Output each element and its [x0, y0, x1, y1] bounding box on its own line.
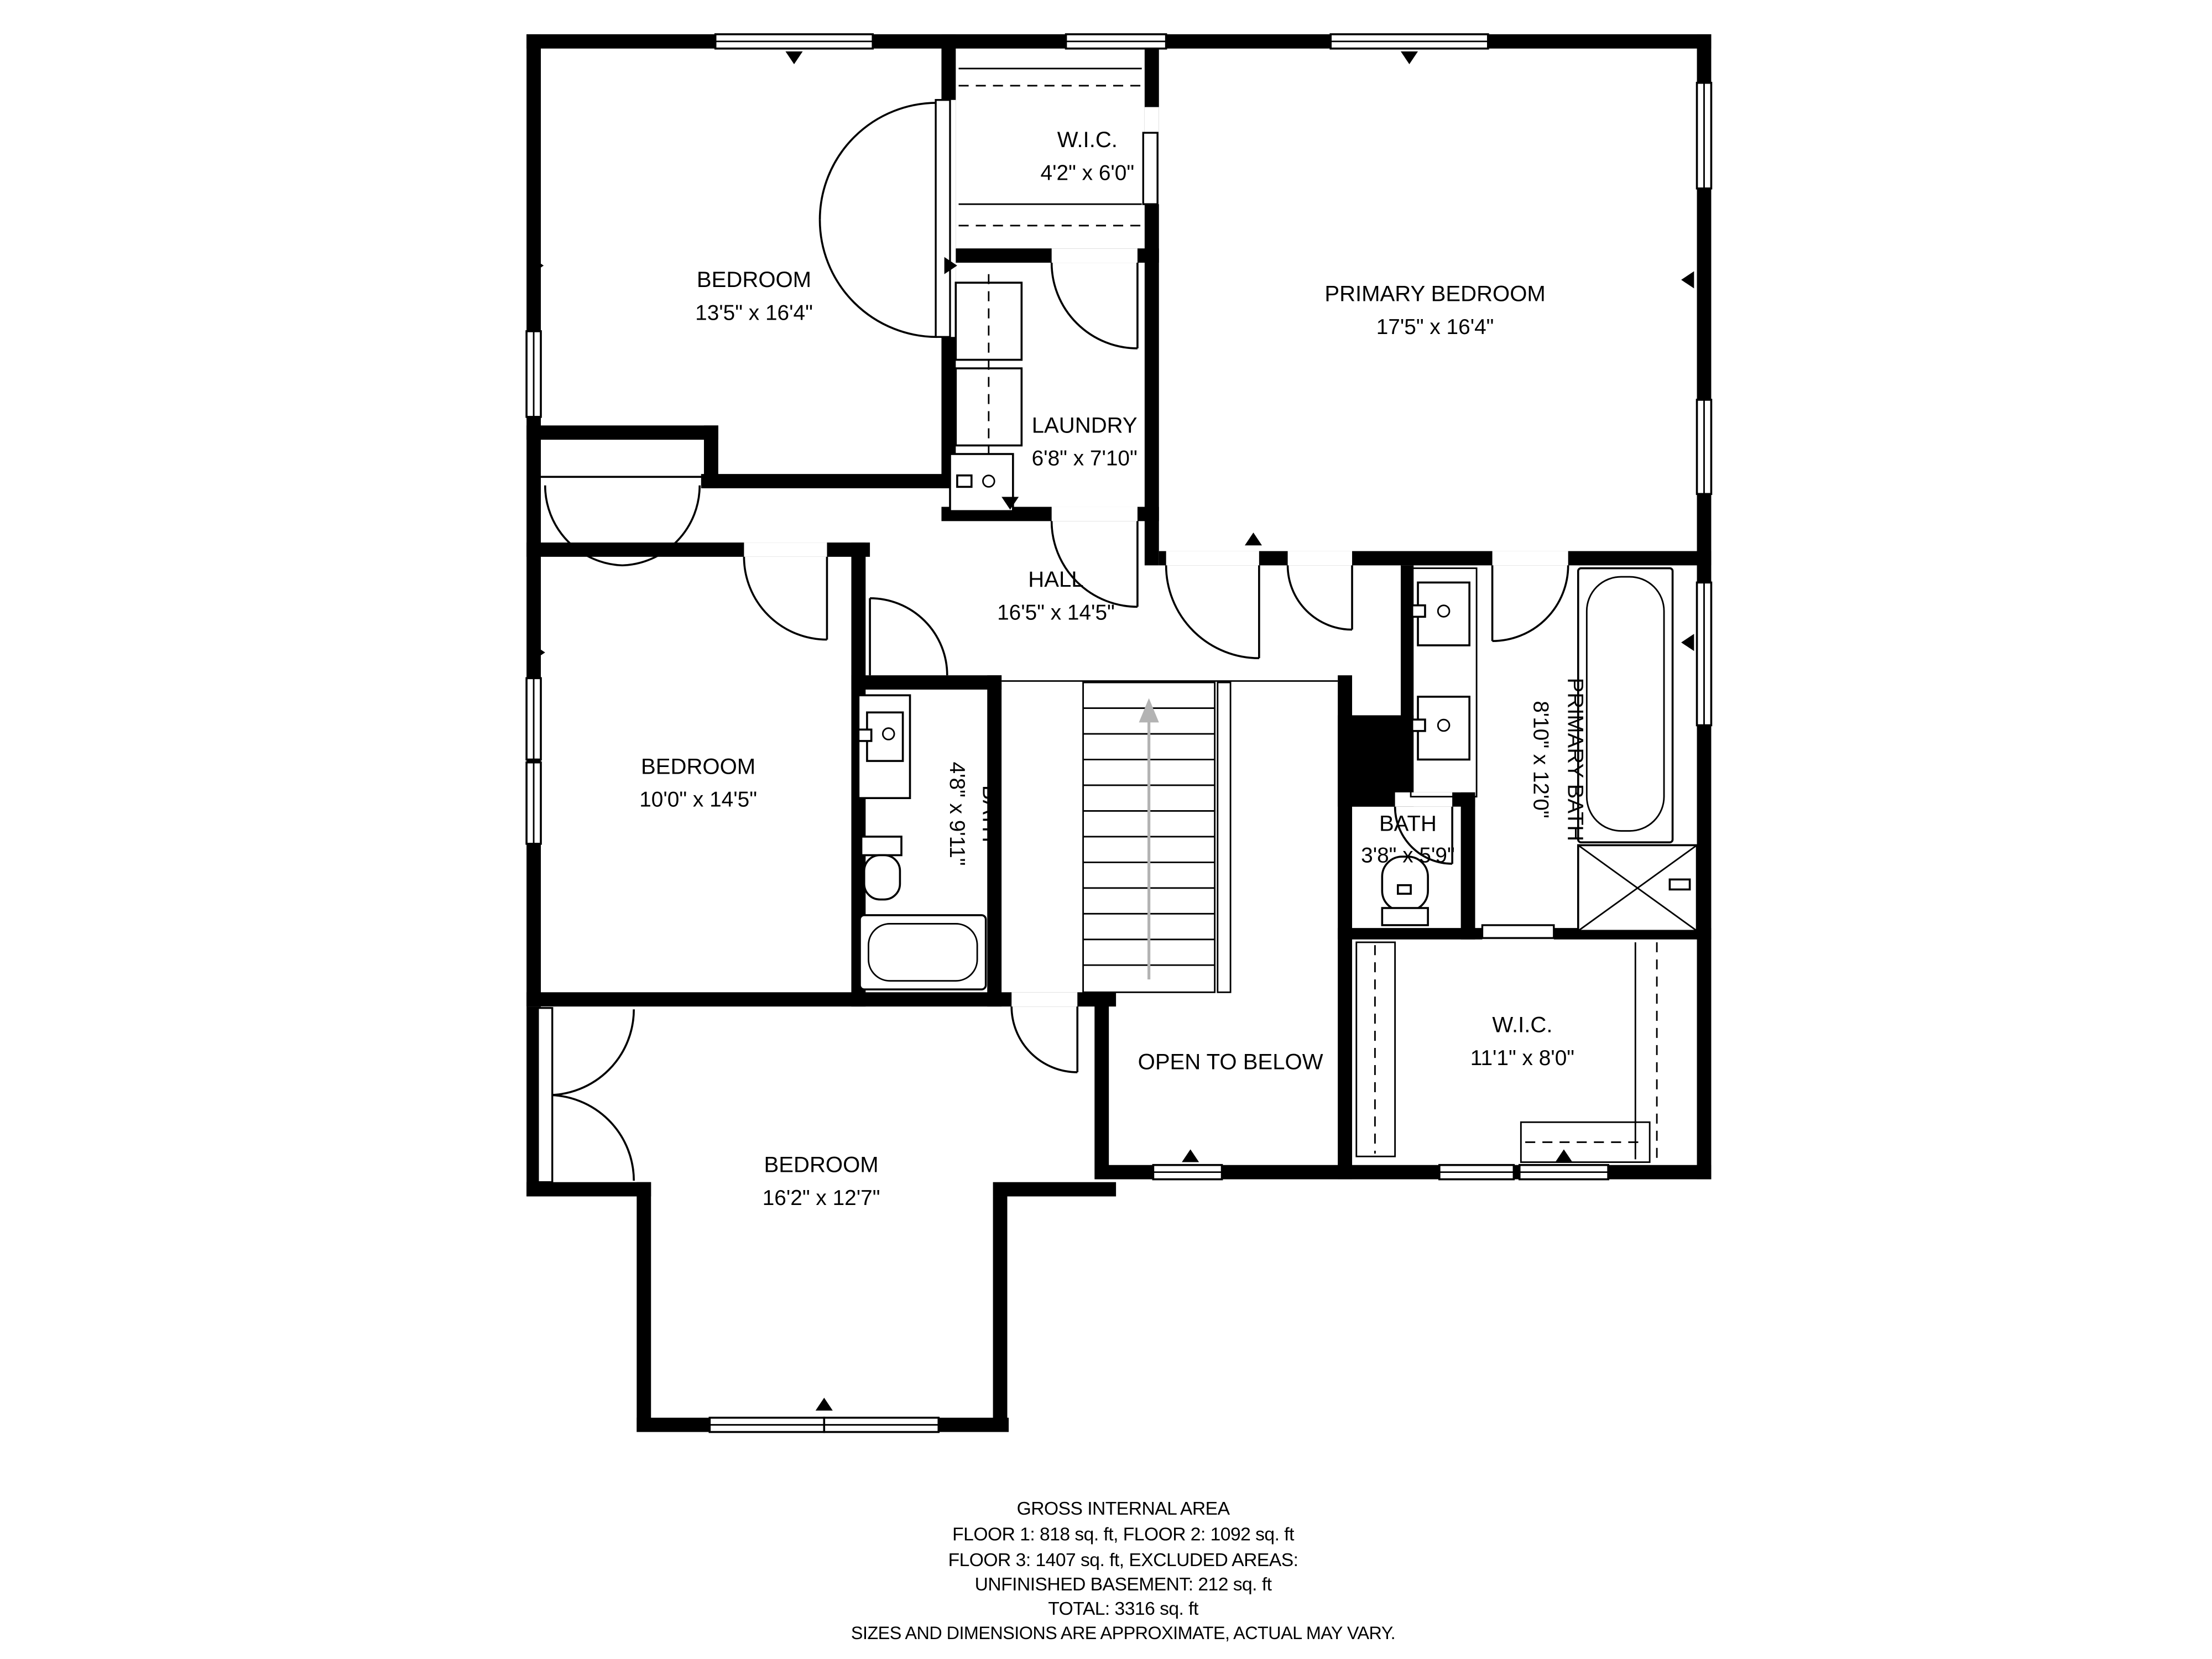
pocket-door-leaf	[1143, 133, 1157, 204]
room-label-laundry: LAUNDRY	[1032, 413, 1138, 437]
window	[1331, 34, 1488, 49]
wall-segment	[1401, 565, 1413, 722]
window	[709, 1418, 824, 1432]
door	[744, 557, 827, 640]
room-label-wic-bottom: W.I.C.	[1492, 1013, 1552, 1037]
wall-segment	[637, 1182, 651, 1432]
room-dims-wic-top: 4'2" x 6'0"	[1041, 161, 1135, 185]
opening	[1166, 551, 1259, 566]
window	[1066, 34, 1166, 49]
door	[1166, 565, 1259, 658]
shower	[1578, 845, 1697, 931]
footer-title: GROSS INTERNAL AREA	[1017, 1499, 1230, 1519]
window	[1520, 1165, 1608, 1180]
room-label-open-to-below: OPEN TO BELOW	[1138, 1050, 1323, 1074]
wall-segment	[1461, 792, 1475, 940]
opening	[1395, 792, 1452, 807]
window	[1439, 1165, 1514, 1180]
door	[1052, 521, 1138, 607]
room-dims-hall: 16'5" x 14'5"	[997, 601, 1115, 625]
stair-railing	[1218, 682, 1230, 992]
room-dims-bath-left: 4'8" x 9'11"	[945, 762, 969, 866]
room-dims-bath-small: 3'8" x 5'9"	[1361, 843, 1455, 867]
floor-plan-svg: BEDROOM 13'5" x 16'4" W.I.C. 4'2" x 6'0"…	[0, 0, 2212, 1659]
floor-plan-page: BEDROOM 13'5" x 16'4" W.I.C. 4'2" x 6'0"…	[0, 0, 2212, 1659]
wall-segment	[993, 1197, 1008, 1432]
footer-line2: FLOOR 3: 1407 sq. ft, EXCLUDED AREAS:	[948, 1550, 1298, 1571]
double-door	[538, 1008, 634, 1182]
primary-bath-fixtures	[1411, 568, 1697, 931]
room-label-bedroom-left: BEDROOM	[641, 754, 755, 779]
window	[1697, 582, 1712, 725]
opening	[744, 542, 827, 557]
laundry-sink	[950, 454, 1013, 511]
toilet	[862, 837, 901, 900]
room-labels: BEDROOM 13'5" x 16'4" W.I.C. 4'2" x 6'0"…	[639, 128, 1588, 1210]
wall-segment	[704, 425, 718, 488]
room-dims-primary-bath: 8'10" x 12'0"	[1529, 701, 1553, 818]
door	[1493, 565, 1568, 641]
room-dims-bedroom-bottom: 16'2" x 12'7"	[763, 1186, 880, 1210]
room-label-hall: HALL	[1028, 567, 1083, 592]
door	[1288, 565, 1352, 629]
room-dims-primary-bedroom: 17'5" x 16'4"	[1376, 315, 1494, 339]
opening	[1052, 507, 1138, 521]
room-label-bath-small: BATH	[1379, 812, 1437, 836]
bathtub	[1578, 568, 1673, 843]
wall-segment	[526, 425, 718, 440]
room-label-bedroom-bottom: BEDROOM	[764, 1153, 879, 1177]
window	[526, 331, 541, 417]
room-label-bedroom-top-left: BEDROOM	[697, 268, 811, 292]
pocket-door-leaf	[1482, 925, 1553, 938]
opening	[1052, 248, 1138, 263]
laundry-fixtures	[950, 274, 1021, 512]
window	[824, 1418, 938, 1432]
window	[716, 34, 873, 49]
footer-area-summary: GROSS INTERNAL AREA FLOOR 1: 818 sq. ft,…	[851, 1499, 1395, 1643]
room-label-bath-left: BATH	[978, 785, 1002, 843]
room-label-primary-bath: PRIMARY BATH	[1563, 678, 1588, 842]
wall-segment	[993, 1182, 1117, 1197]
wall-segment	[526, 1182, 651, 1197]
double-vanity	[1411, 568, 1477, 797]
footer-line3: UNFINISHED BASEMENT: 212 sq. ft	[975, 1574, 1272, 1595]
wall-segment	[1094, 992, 1109, 1179]
room-label-wic-top: W.I.C.	[1057, 128, 1118, 152]
stair-direction-arrow	[1139, 698, 1159, 979]
footer-disclaimer: SIZES AND DIMENSIONS ARE APPROXIMATE, AC…	[851, 1623, 1395, 1643]
footer-line1: FLOOR 1: 818 sq. ft, FLOOR 2: 1092 sq. f…	[952, 1525, 1295, 1545]
window	[526, 678, 541, 759]
wall-segment	[526, 34, 541, 1006]
bathtub	[860, 915, 986, 989]
staircase	[1001, 681, 1338, 992]
vanity-sink	[858, 695, 910, 798]
wall-segment	[701, 474, 956, 488]
window	[1697, 83, 1712, 189]
wall-segment	[851, 675, 1001, 690]
opening	[1493, 551, 1568, 566]
shower-handle	[1670, 879, 1689, 889]
door	[1052, 263, 1138, 348]
opening	[1011, 992, 1077, 1006]
opening	[1288, 551, 1352, 566]
window	[1697, 400, 1712, 494]
room-label-primary-bedroom: PRIMARY BEDROOM	[1324, 282, 1545, 306]
room-dims-bedroom-top-left: 13'5" x 16'4"	[695, 301, 813, 325]
door	[1011, 1006, 1077, 1072]
window	[526, 763, 541, 844]
room-dims-wic-bottom: 11'1" x 8'0"	[1470, 1046, 1574, 1070]
door	[870, 598, 947, 675]
double-door	[820, 100, 950, 337]
window	[1153, 1165, 1222, 1180]
footer-total: TOTAL: 3316 sq. ft	[1048, 1599, 1199, 1619]
room-dims-laundry: 6'8" x 7'10"	[1032, 447, 1138, 471]
room-dims-bedroom-left: 10'0" x 14'5"	[639, 788, 757, 812]
